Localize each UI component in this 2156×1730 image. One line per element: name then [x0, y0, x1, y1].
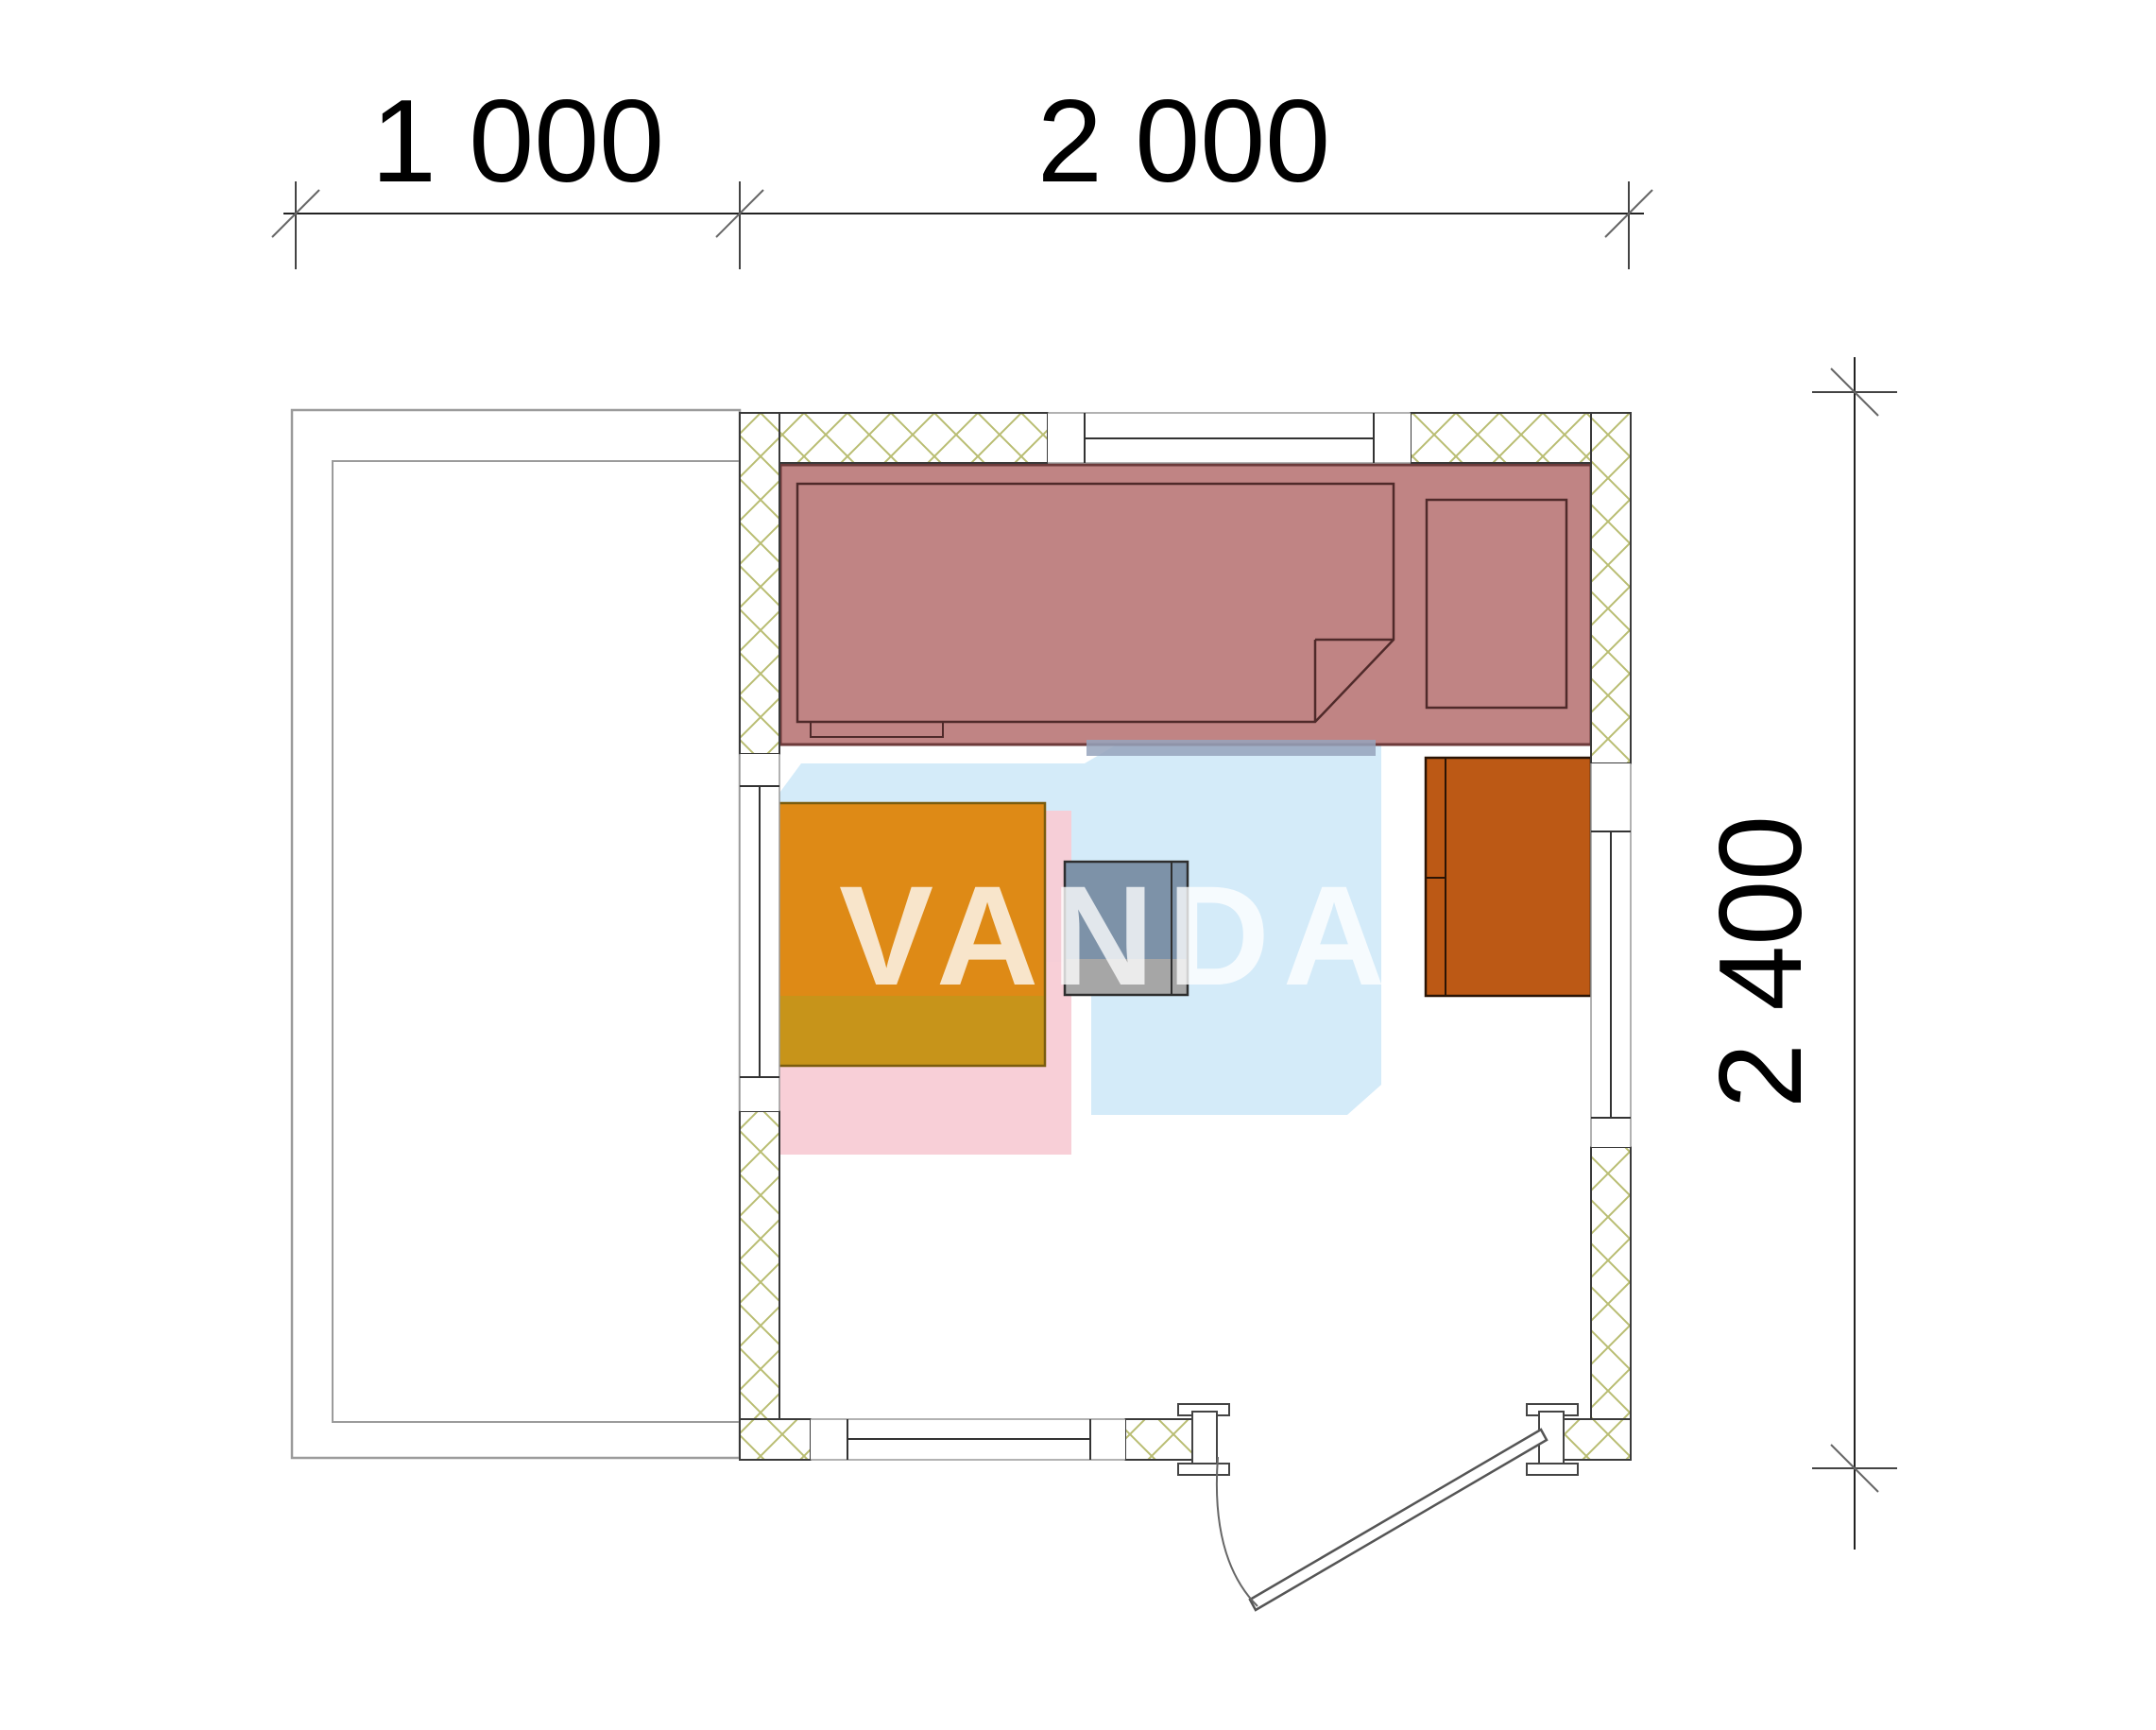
dim-label-top-right: 2 000	[1037, 77, 1330, 207]
window-top	[1048, 413, 1411, 463]
dimension-right: 2 400	[1696, 357, 1897, 1550]
wall-bottom-pier	[1125, 1419, 1193, 1460]
door-swing-arc	[1217, 1457, 1258, 1606]
bed-bench	[780, 465, 1591, 745]
terrace-outer-outline	[292, 410, 740, 1458]
bed-bench-body	[780, 465, 1591, 745]
wall-left-upper-segment	[740, 413, 779, 754]
dim-label-top-left: 1 000	[371, 77, 664, 207]
terrace	[292, 410, 746, 1458]
wall-bottom-right-corner	[1564, 1419, 1631, 1460]
wall-left-lower-segment	[740, 1111, 779, 1460]
floor-plan-page: VANDA	[0, 0, 2156, 1725]
wall-bottom-left-corner	[740, 1419, 811, 1460]
terrace-inner-outline	[333, 461, 746, 1422]
window-right	[1591, 763, 1631, 1147]
wall-top-left-segment	[740, 413, 1048, 463]
watermark-text: VANDA	[839, 856, 1398, 1015]
dim-label-right: 2 400	[1696, 815, 1826, 1108]
watermark-top-strip	[1087, 740, 1376, 756]
window-bottom	[811, 1419, 1125, 1460]
heater	[1426, 758, 1591, 996]
heater-body	[1426, 758, 1591, 996]
wall-right-lower-segment	[1591, 1147, 1631, 1460]
dimension-top: 1 000 2 000	[272, 77, 1652, 269]
wall-right-upper-segment	[1591, 413, 1631, 763]
window-left	[740, 754, 779, 1111]
floor-plan-svg: VANDA	[0, 0, 2156, 1725]
